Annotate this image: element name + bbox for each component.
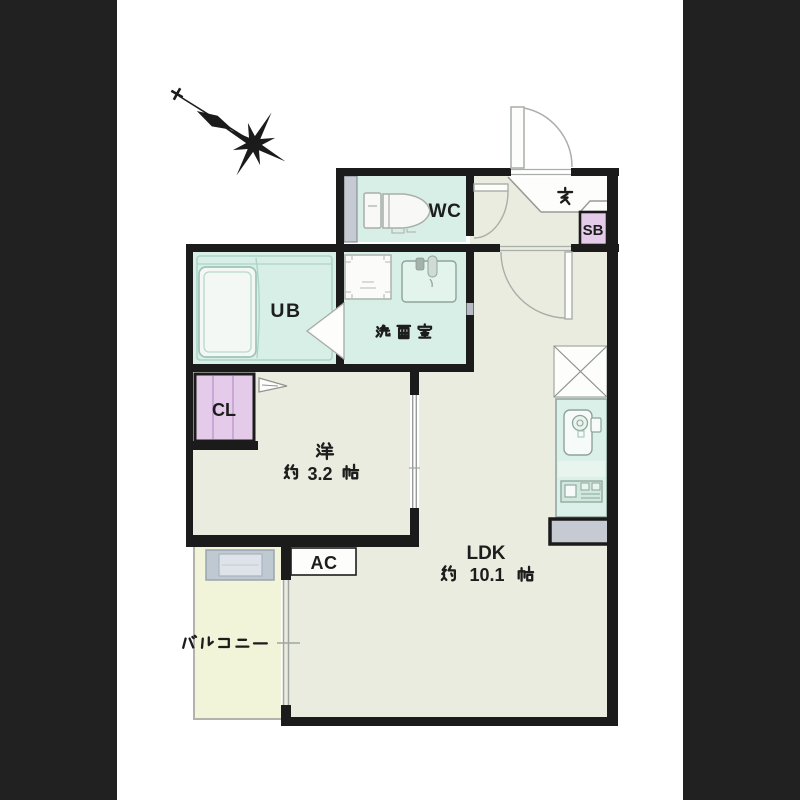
svg-text:LDK: LDK	[466, 543, 505, 564]
svg-text:10.1: 10.1	[469, 565, 504, 585]
svg-text:WC: WC	[429, 201, 462, 222]
svg-text:AC: AC	[311, 553, 338, 573]
svg-text:UB: UB	[270, 300, 301, 322]
svg-text:3.2: 3.2	[307, 464, 332, 484]
svg-text:SB: SB	[583, 222, 604, 239]
svg-text:CL: CL	[212, 400, 236, 420]
